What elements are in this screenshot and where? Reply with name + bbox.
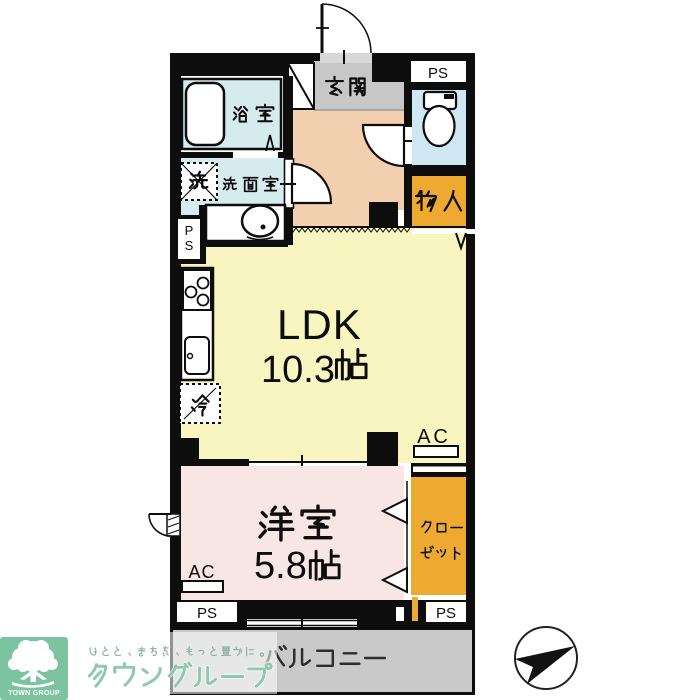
svg-text:AC: AC <box>417 426 451 448</box>
svg-text:PS: PS <box>428 65 448 82</box>
svg-text:5.8: 5.8 <box>254 545 307 587</box>
svg-text:AC: AC <box>188 562 215 582</box>
svg-text:PS: PS <box>197 605 217 622</box>
svg-text:PS: PS <box>436 605 456 622</box>
svg-text:10.3: 10.3 <box>261 349 335 391</box>
svg-text:P: P <box>185 223 194 238</box>
svg-text:TOWN GROUP: TOWN GROUP <box>8 690 60 697</box>
svg-text:LDK: LDK <box>277 301 362 348</box>
svg-text:S: S <box>185 238 194 253</box>
